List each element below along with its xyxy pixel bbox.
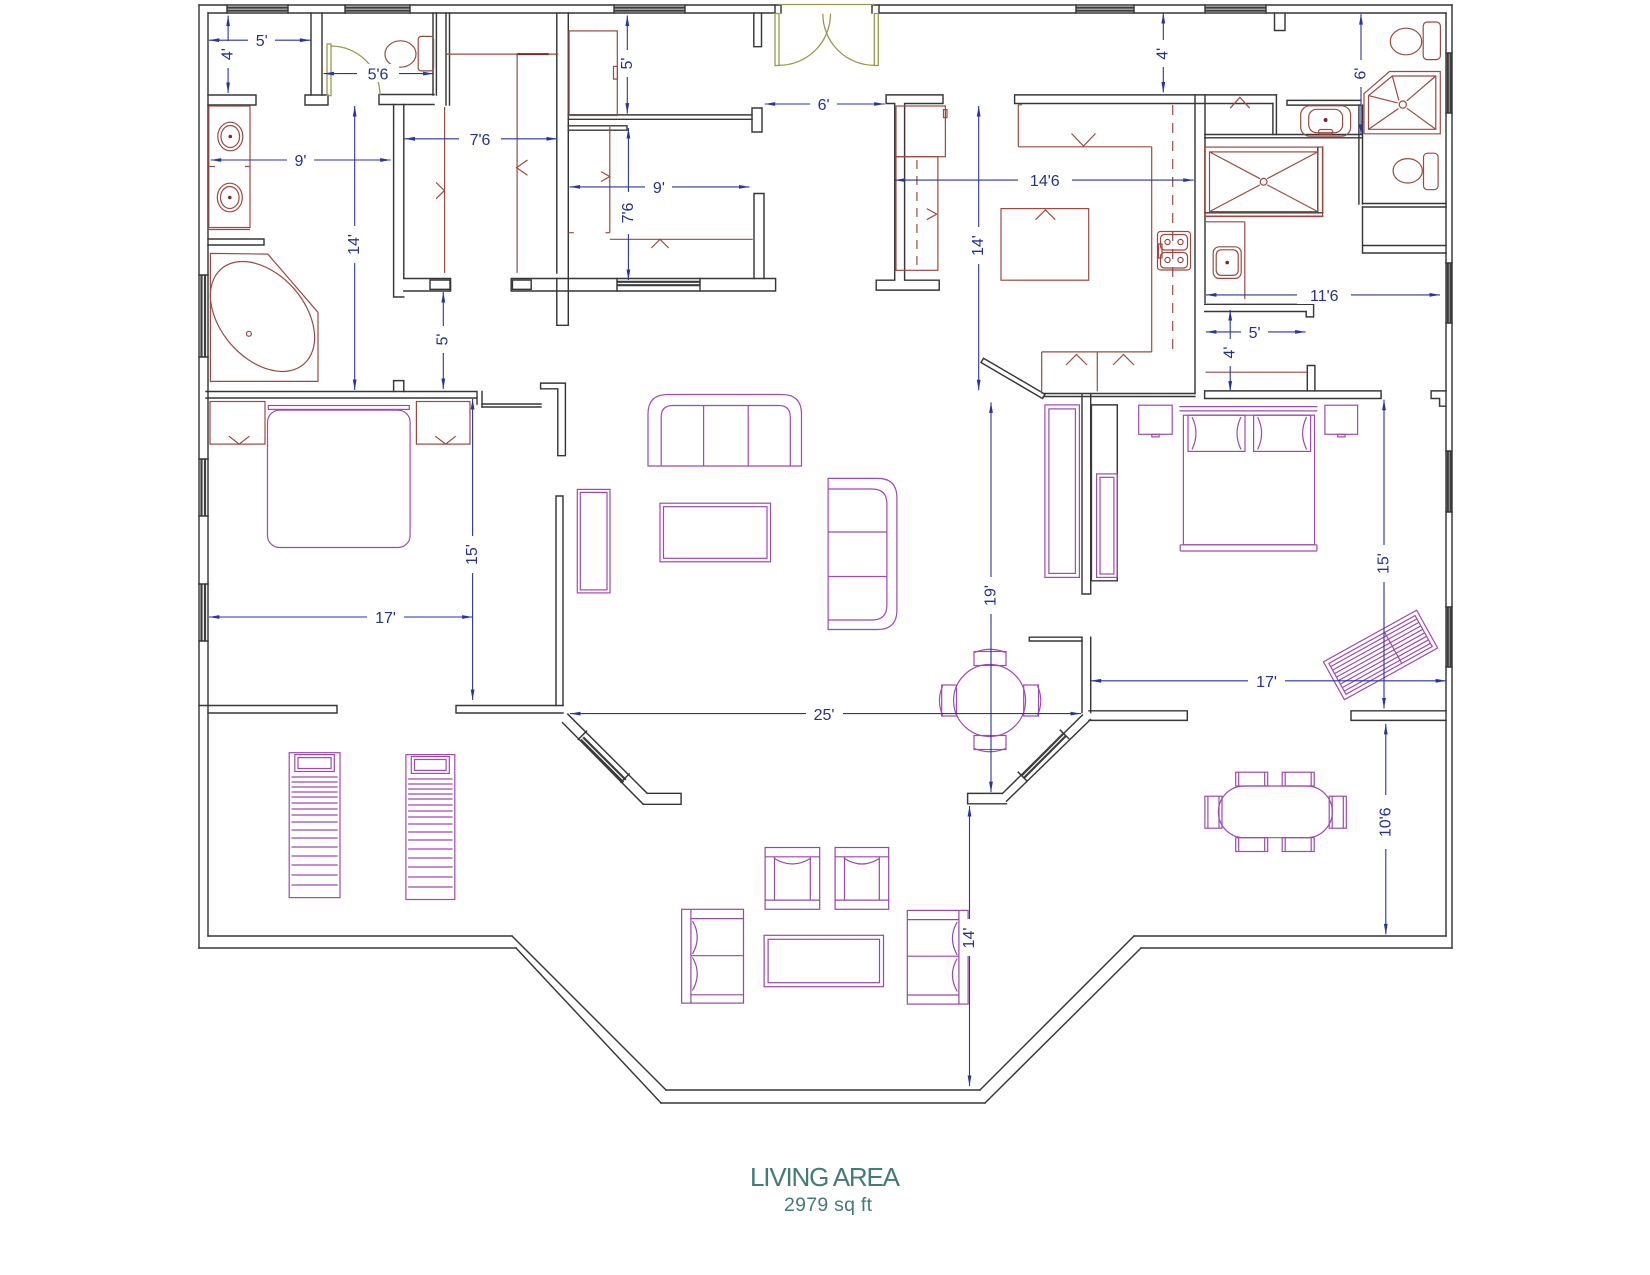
svg-text:6': 6' (1353, 68, 1370, 80)
svg-text:25': 25' (814, 707, 835, 724)
svg-text:15': 15' (464, 544, 481, 565)
svg-text:19': 19' (983, 585, 1000, 606)
svg-text:9': 9' (653, 180, 665, 197)
svg-text:LIVING AREA: LIVING AREA (750, 1162, 901, 1192)
svg-text:7'6: 7'6 (470, 132, 491, 149)
svg-text:15': 15' (1376, 553, 1393, 574)
svg-text:14': 14' (970, 235, 987, 256)
svg-text:5'6: 5'6 (368, 67, 389, 84)
svg-text:9': 9' (295, 153, 307, 170)
svg-text:4': 4' (1155, 48, 1172, 60)
svg-text:5': 5' (435, 334, 452, 346)
svg-text:17': 17' (375, 610, 396, 627)
svg-text:14': 14' (961, 928, 978, 949)
svg-text:14': 14' (346, 234, 363, 255)
svg-text:17': 17' (1256, 674, 1277, 691)
svg-text:4': 4' (220, 48, 237, 60)
svg-text:2979 sq ft: 2979 sq ft (784, 1194, 873, 1216)
svg-text:6': 6' (818, 97, 830, 114)
svg-text:4': 4' (1222, 347, 1239, 359)
svg-text:5': 5' (256, 33, 268, 50)
svg-text:5': 5' (619, 58, 636, 70)
svg-text:7'6: 7'6 (620, 202, 637, 223)
svg-text:5': 5' (1249, 325, 1261, 342)
svg-text:14'6: 14'6 (1030, 173, 1060, 190)
svg-text:11'6: 11'6 (1310, 288, 1339, 305)
svg-text:10'6: 10'6 (1377, 807, 1394, 837)
